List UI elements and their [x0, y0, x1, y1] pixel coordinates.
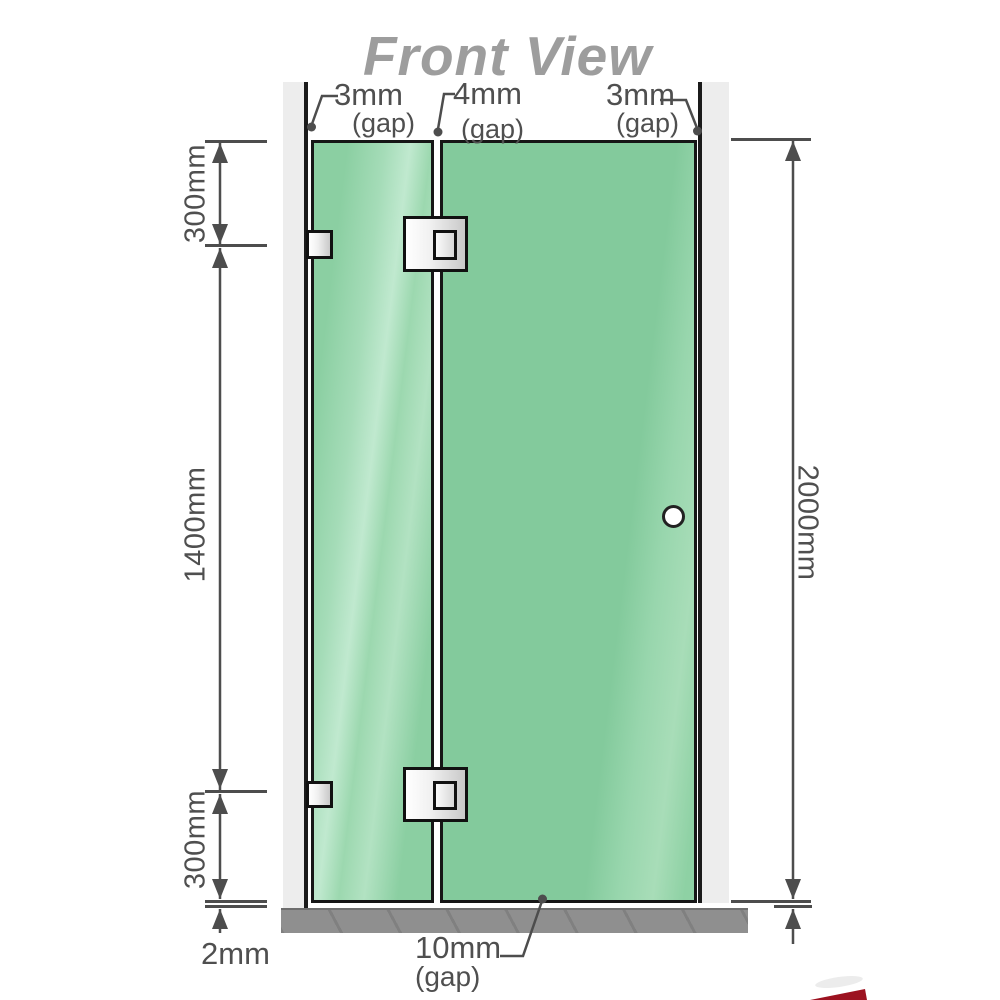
wall-strip-left	[283, 82, 308, 908]
annotation-gap-wall-left: 3mm (gap)	[334, 80, 415, 136]
door-handle-knob	[662, 505, 685, 528]
floor-base	[281, 908, 748, 933]
glass-hinge-top-clamp	[433, 230, 457, 260]
front-view-diagram: Front View	[0, 0, 1000, 1000]
glass-hinge-bottom-clamp	[433, 781, 457, 810]
logo-fragment	[803, 972, 878, 1000]
wall-strip-right	[698, 82, 729, 903]
wall-bracket-top	[306, 230, 333, 259]
dimension-label-300mm-bottom: 300mm	[180, 760, 213, 920]
dimension-label-1400mm: 1400mm	[180, 445, 213, 605]
gap-unit-label: (gap)	[352, 110, 415, 136]
gap-unit-label: (gap)	[616, 110, 679, 136]
annotation-gap-panels: 4mm (gap)	[453, 79, 524, 142]
gap-value: 10mm	[415, 932, 501, 963]
glass-panel-door	[440, 140, 697, 903]
gap-value: 4mm	[453, 79, 524, 109]
dimension-label-2000mm: 2000mm	[791, 443, 824, 603]
annotation-gap-wall-right: 3mm (gap)	[606, 80, 679, 136]
annotation-base-thickness: 2mm	[201, 936, 270, 972]
annotation-gap-bottom: 10mm (gap)	[415, 932, 501, 990]
gap-unit-label: (gap)	[461, 116, 524, 142]
gap-value: 3mm	[334, 80, 415, 110]
gap-unit-label: (gap)	[415, 963, 501, 990]
wall-bracket-bottom	[306, 781, 333, 808]
dimension-label-300mm-top: 300mm	[180, 114, 213, 274]
gap-value: 3mm	[606, 80, 679, 110]
